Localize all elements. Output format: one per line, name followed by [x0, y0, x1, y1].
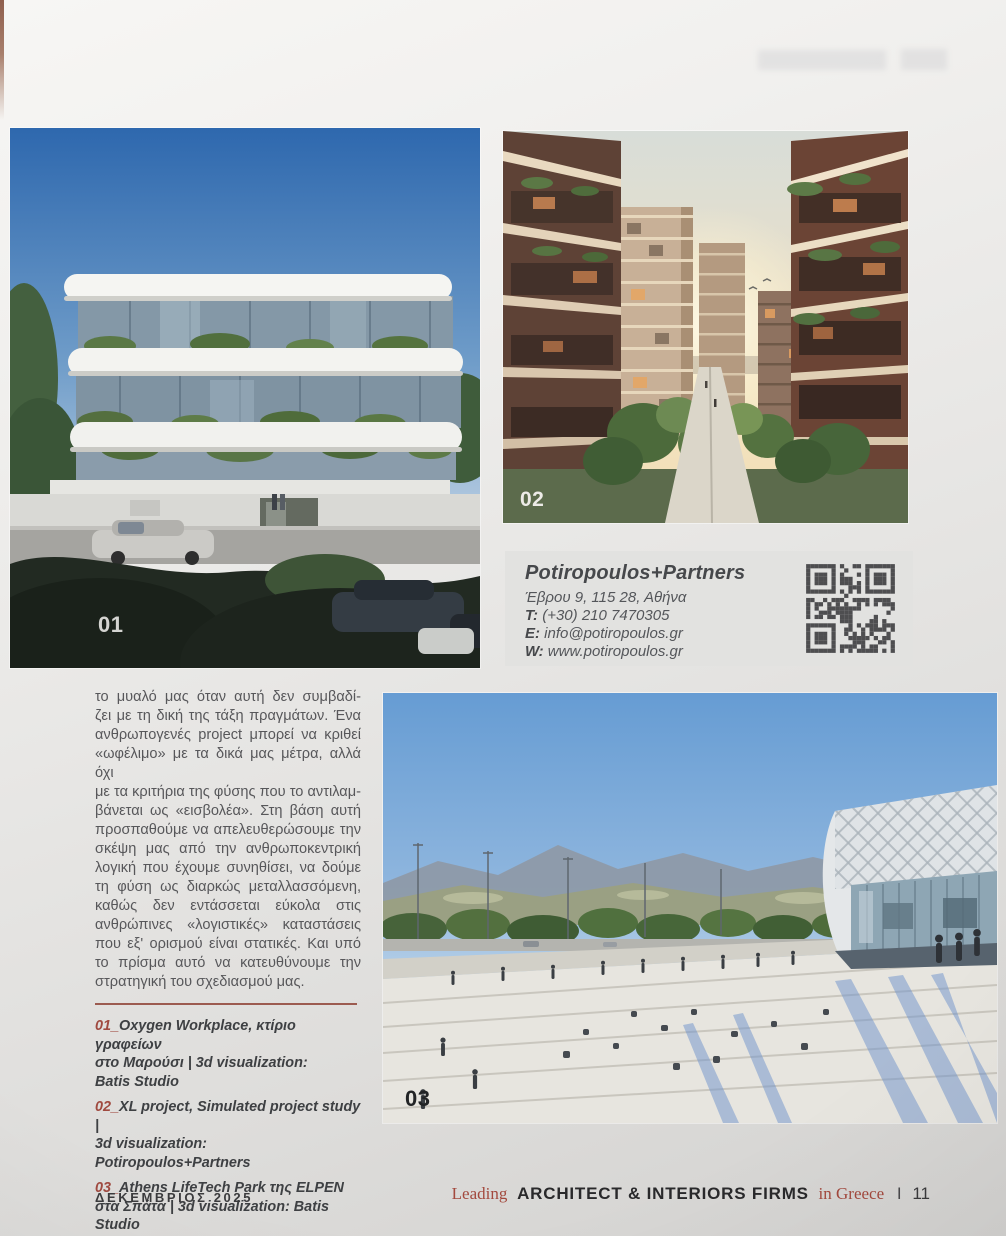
caption-01: 01_Oxygen Workplace, κτίριο γραφείων στο…: [95, 1017, 361, 1091]
caption-03-text: Athens LifeTech Park της ELPEN στα Σπάτα…: [95, 1180, 344, 1233]
render-xl-project: [503, 131, 908, 523]
article-body-text: το μυαλό μας όταν αυτή δεν συμβαδί- ζει …: [95, 688, 361, 973]
phone-label: T:: [525, 607, 538, 624]
photo-03-number: 03: [405, 1088, 430, 1110]
article-column: το μυαλό μας όταν αυτή δεν συμβαδί- ζει …: [95, 688, 361, 1236]
caption-divider-rule: [95, 1003, 357, 1005]
show-through-ghost: [901, 49, 947, 70]
web-label: W:: [525, 643, 544, 660]
firm-website: W: www.potiropoulos.gr: [525, 643, 793, 661]
firm-email: E: info@potiropoulos.gr: [525, 625, 793, 643]
photo-03-athens-lifetech-park: 03: [383, 693, 997, 1123]
firm-phone: T: (+30) 210 7470305: [525, 607, 793, 625]
render-oxygen-workplace: [10, 128, 480, 668]
article-body-last-line: στρατηγική του σχεδιασμού μας.: [95, 973, 361, 992]
caption-02-number: 02_: [95, 1099, 119, 1115]
photo-01-number: 01: [98, 614, 123, 636]
footer-separator: I: [897, 1184, 902, 1203]
footer-leading: Leading: [452, 1184, 508, 1203]
footer-in-greece: in Greece: [819, 1184, 885, 1203]
photo-02-xl-project: 02: [503, 131, 908, 523]
footer-issue-date: ΔΕΚΕΜΒΡΙΟΣ 2025: [95, 1190, 253, 1205]
photo-01-oxygen-workplace: 01: [10, 128, 480, 668]
show-through-ghost: [758, 50, 886, 70]
caption-02: 02_XL project, Simulated project study |…: [95, 1098, 361, 1172]
photo-02-number: 02: [520, 489, 544, 510]
caption-03: 03_Athens LifeTech Park της ELPEN στα Σπ…: [95, 1179, 361, 1235]
contact-card: Potiropoulos+Partners Έβρου 9, 115 28, Α…: [505, 551, 913, 666]
footer-page-number: 11: [912, 1184, 930, 1203]
magazine-page: 01: [0, 0, 1006, 1236]
qr-code: [804, 562, 897, 655]
footer-publication-title: Leading ARCHITECT & INTERIORS FIRMS in G…: [452, 1184, 930, 1204]
email-label: E:: [525, 625, 540, 642]
caption-02-text: XL project, Simulated project study | 3d…: [95, 1099, 360, 1171]
footer-firms: ARCHITECT & INTERIORS FIRMS: [517, 1184, 809, 1203]
page-edge-shadow: [0, 0, 4, 120]
caption-01-text: Oxygen Workplace, κτίριο γραφείων στο Μα…: [95, 1018, 308, 1090]
firm-address: Έβρου 9, 115 28, Αθήνα: [525, 589, 793, 607]
caption-01-number: 01_: [95, 1018, 119, 1034]
render-lifetech-park: [383, 693, 997, 1123]
firm-name: Potiropoulos+Partners: [525, 562, 793, 585]
